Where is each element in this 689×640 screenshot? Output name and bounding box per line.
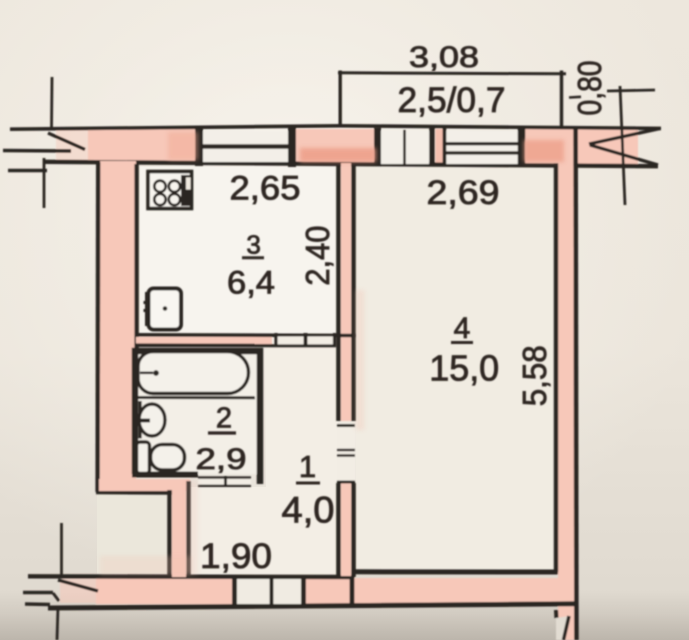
svg-text:4,0: 4,0	[282, 488, 335, 530]
svg-text:2,40: 2,40	[299, 226, 336, 286]
svg-text:2,5/0,7: 2,5/0,7	[398, 81, 506, 120]
svg-text:1: 1	[299, 449, 316, 484]
svg-text:6,4: 6,4	[227, 265, 275, 301]
svg-text:1,90: 1,90	[200, 537, 272, 576]
svg-text:0,80: 0,80	[571, 61, 608, 116]
svg-text:15,0: 15,0	[429, 348, 499, 389]
svg-text:3,08: 3,08	[409, 41, 479, 74]
svg-text:2,65: 2,65	[230, 169, 301, 207]
svg-text:3: 3	[246, 230, 260, 260]
svg-text:5,58: 5,58	[516, 345, 553, 406]
svg-text:2,69: 2,69	[427, 174, 500, 212]
svg-text:2: 2	[216, 403, 232, 435]
svg-text:4: 4	[454, 312, 471, 345]
svg-text:2,9: 2,9	[196, 443, 247, 476]
